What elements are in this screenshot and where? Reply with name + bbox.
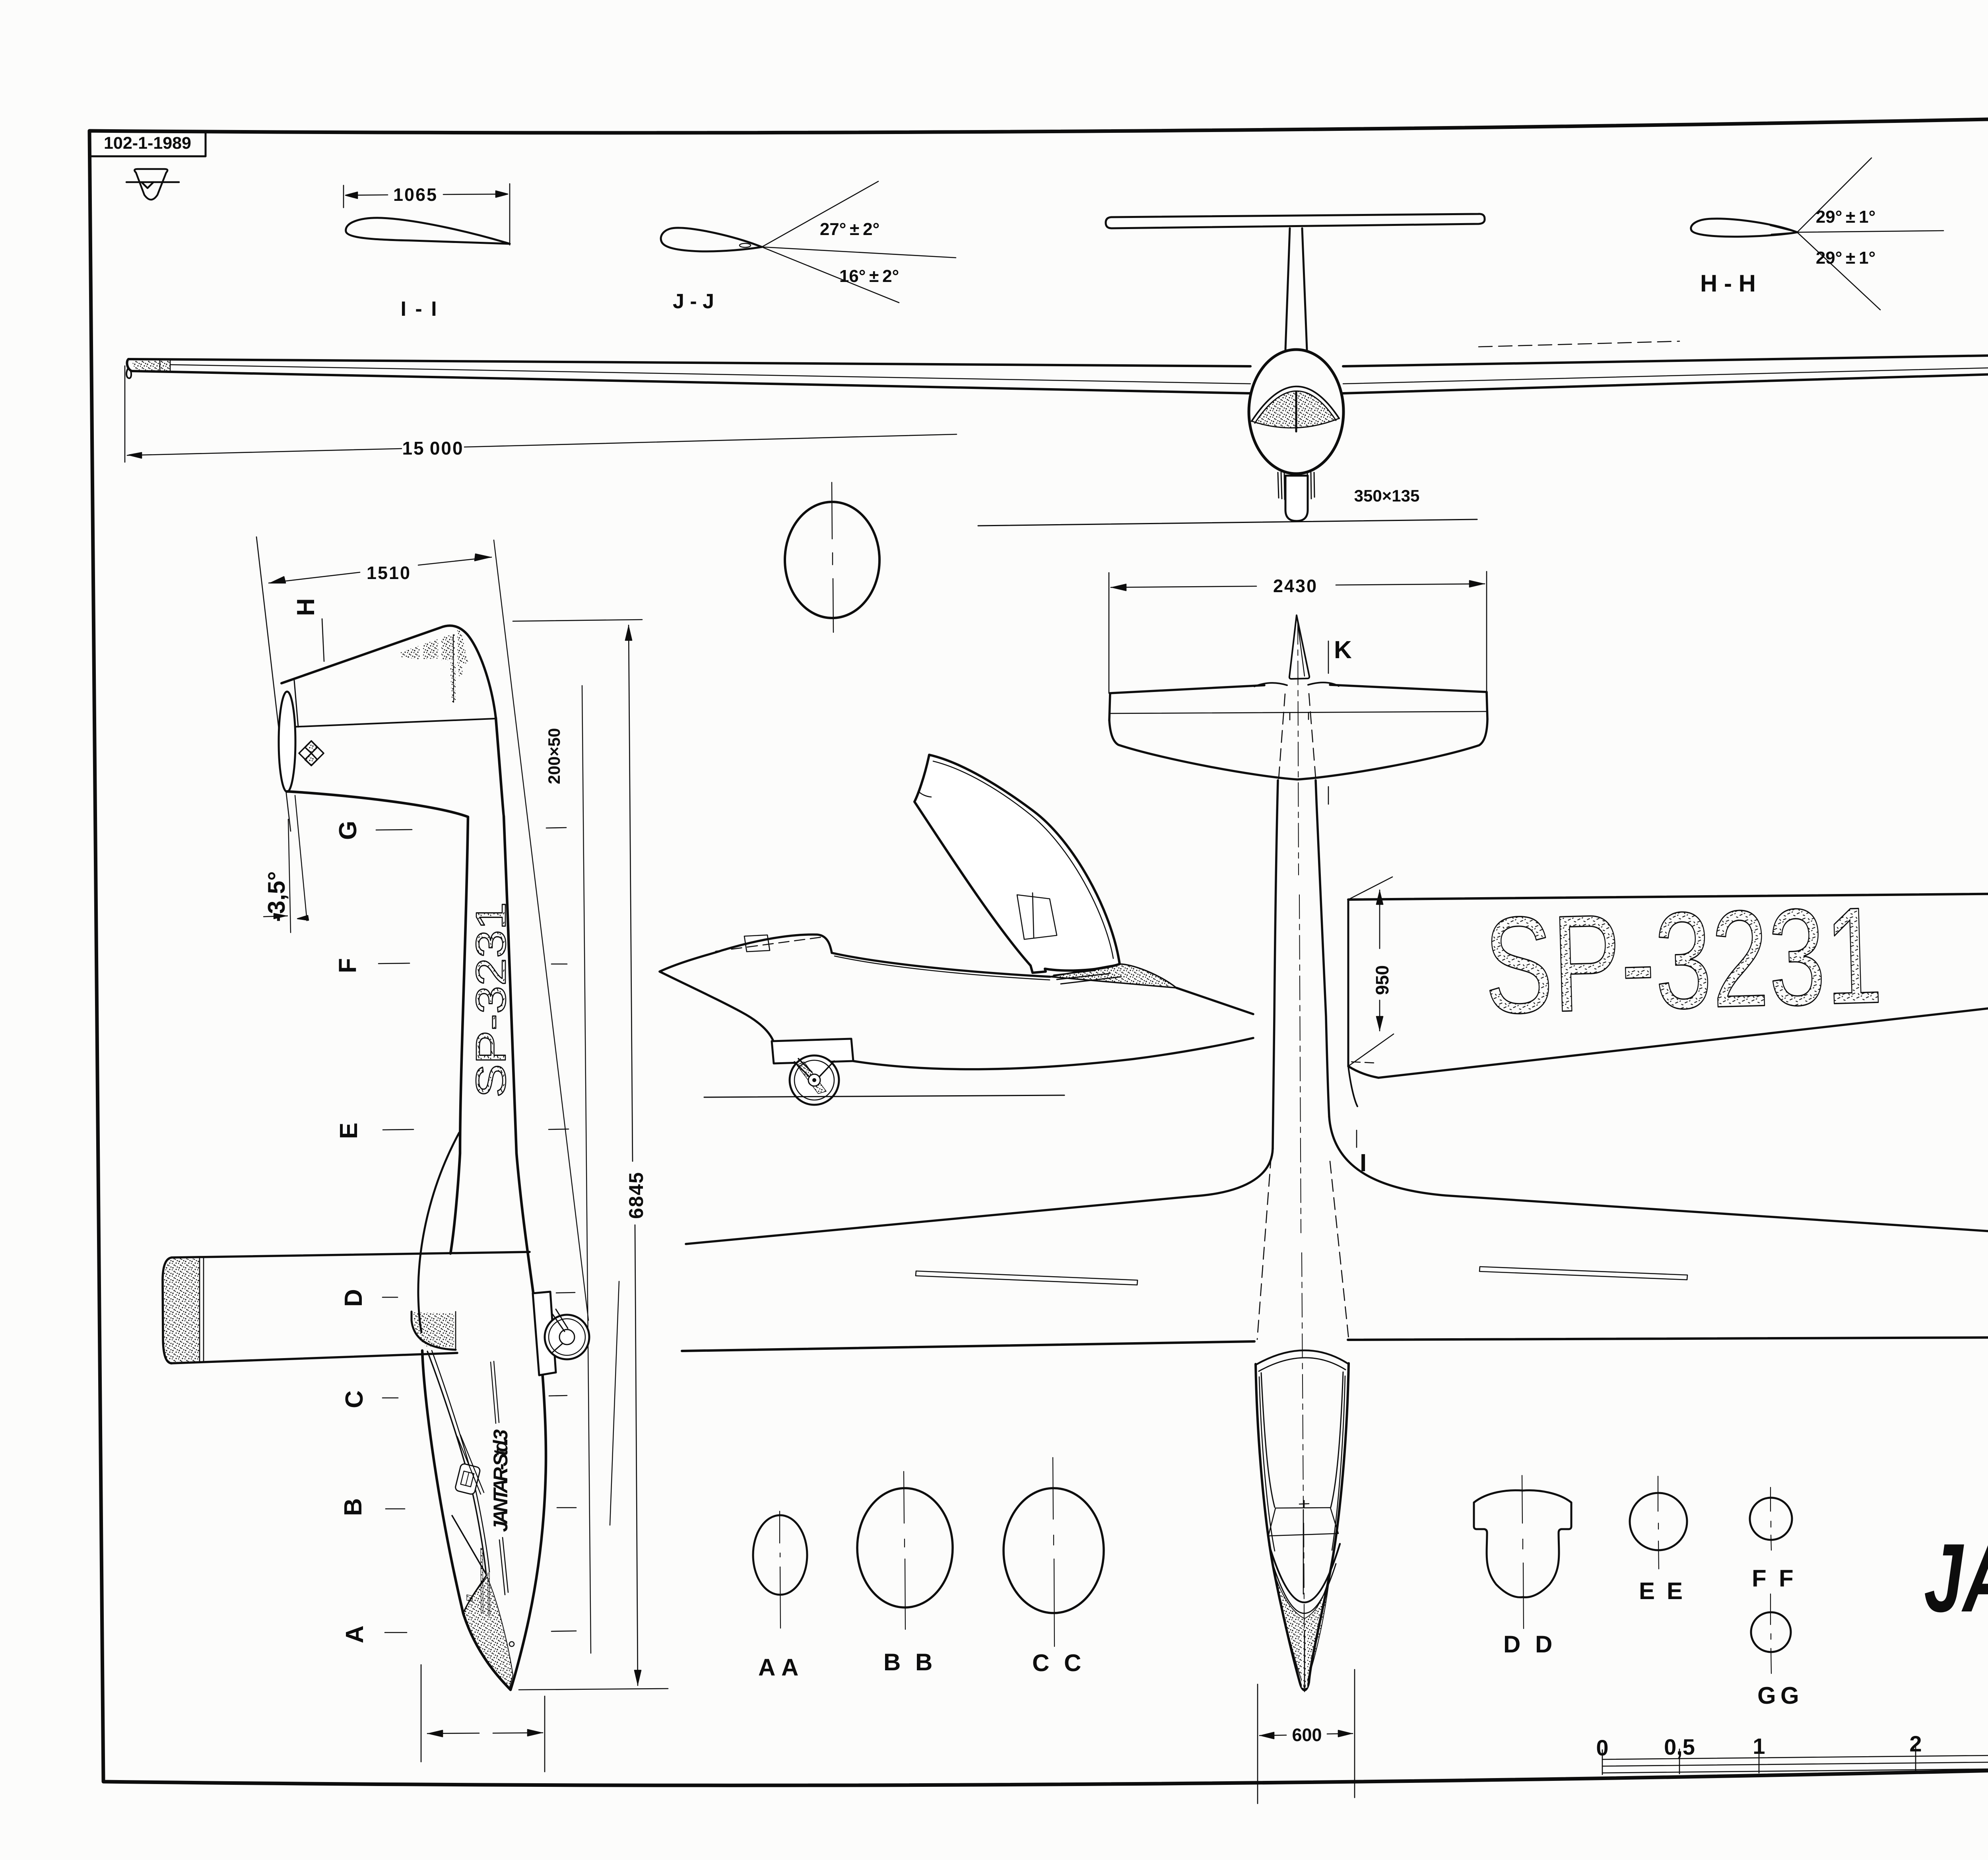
svg-text:I: I [1360,1149,1367,1177]
svg-text:F: F [1779,1565,1794,1592]
svg-text:G: G [334,821,362,840]
svg-text:2430: 2430 [1273,576,1318,596]
svg-text:E: E [1667,1578,1683,1604]
svg-text:JANTAR: JANTAR [1924,1523,1988,1632]
svg-text:JANTAR-Std.3: JANTAR-Std.3 [489,1429,512,1532]
svg-text:-3,5°: -3,5° [263,871,290,922]
svg-text:1: 1 [1753,1734,1765,1759]
svg-text:200×50: 200×50 [545,728,563,784]
svg-text:C: C [1032,1650,1049,1676]
svg-text:D: D [1503,1631,1520,1658]
svg-text:0: 0 [1596,1735,1608,1760]
svg-text:0,5: 0,5 [1664,1734,1695,1759]
svg-text:F: F [334,958,361,973]
svg-text:SP-3231: SP-3231 [468,902,514,1098]
svg-text:SP-3231: SP-3231 [1482,878,1884,1043]
svg-text:J - J: J - J [673,290,714,313]
svg-text:D: D [1535,1631,1552,1658]
svg-text:C: C [1064,1650,1081,1676]
svg-text:A: A [758,1654,775,1681]
svg-text:K: K [1334,636,1352,664]
svg-text:E: E [335,1123,363,1139]
svg-text:C: C [341,1390,368,1408]
svg-text:B: B [915,1649,932,1675]
svg-text:29° ± 1°: 29° ± 1° [1816,207,1875,227]
svg-text:27° ± 2°: 27° ± 2° [820,220,879,239]
svg-text:G: G [1757,1682,1776,1709]
svg-text:15 000: 15 000 [402,438,464,459]
svg-text:6845: 6845 [625,1172,647,1219]
svg-text:F: F [1752,1565,1767,1592]
svg-text:I - I: I - I [400,297,438,321]
svg-text:600: 600 [1292,1725,1322,1745]
svg-text:E: E [1639,1578,1655,1604]
svg-text:B: B [340,1498,367,1516]
svg-text:950: 950 [1372,965,1392,995]
svg-text:102-1-1989: 102-1-1989 [104,134,191,153]
svg-text:D: D [340,1289,367,1307]
svg-text:B: B [883,1649,901,1675]
svg-text:29° ± 1°: 29° ± 1° [1816,248,1875,268]
svg-text:H: H [292,598,320,616]
svg-text:A: A [781,1654,798,1681]
svg-text:350×135: 350×135 [1354,486,1420,505]
svg-text:16° ± 2°: 16° ± 2° [839,266,899,286]
svg-text:1065: 1065 [393,185,438,205]
svg-text:2: 2 [1909,1731,1922,1756]
svg-text:1510: 1510 [367,563,411,583]
svg-text:H - H: H - H [1700,270,1756,297]
svg-text:G: G [1780,1682,1799,1709]
svg-text:A: A [341,1625,369,1643]
